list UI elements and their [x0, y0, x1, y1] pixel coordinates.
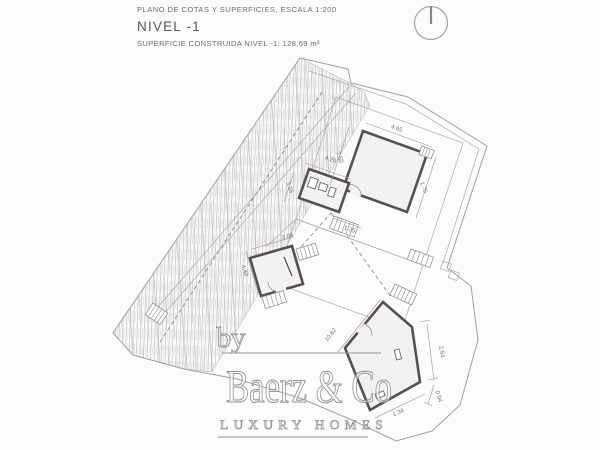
plan-canvas: 4.65 7.50 1.75 4.20 3.26 1.25 3.05 4.40 …: [0, 0, 600, 450]
stair-to-terrace: [390, 284, 417, 305]
floor-plan-page: 4.65 7.50 1.75 4.20 3.26 1.25 3.05 4.40 …: [0, 0, 600, 450]
level-title: NIVEL -1: [137, 19, 201, 34]
dimension-label: 0.94: [433, 390, 443, 404]
watermark-tagline: LUXURY HOMES: [220, 417, 388, 432]
dimension-label: 10.82: [324, 327, 339, 343]
plan-title: PLANO DE COTAS Y SUPERFICIES, ESCALA 1:2…: [137, 5, 337, 14]
header: PLANO DE COTAS Y SUPERFICIES, ESCALA 1:2…: [137, 5, 337, 48]
room-main: [343, 131, 434, 212]
north-icon: [415, 7, 448, 40]
boundary-steps: [440, 261, 459, 281]
stair-upper: [296, 243, 319, 260]
dimension-label: 2.54: [437, 346, 445, 359]
watermark-by: by: [217, 322, 247, 354]
stair-side: [407, 249, 433, 268]
dimension-label: 1.34: [392, 408, 406, 419]
area-subtitle: SUPERFICIE CONSTRUIDA NIVEL -1: 128,69 m…: [137, 39, 320, 48]
dimension-label: 1.75: [418, 181, 428, 195]
watermark-brand: Baerz & Co: [226, 361, 392, 413]
